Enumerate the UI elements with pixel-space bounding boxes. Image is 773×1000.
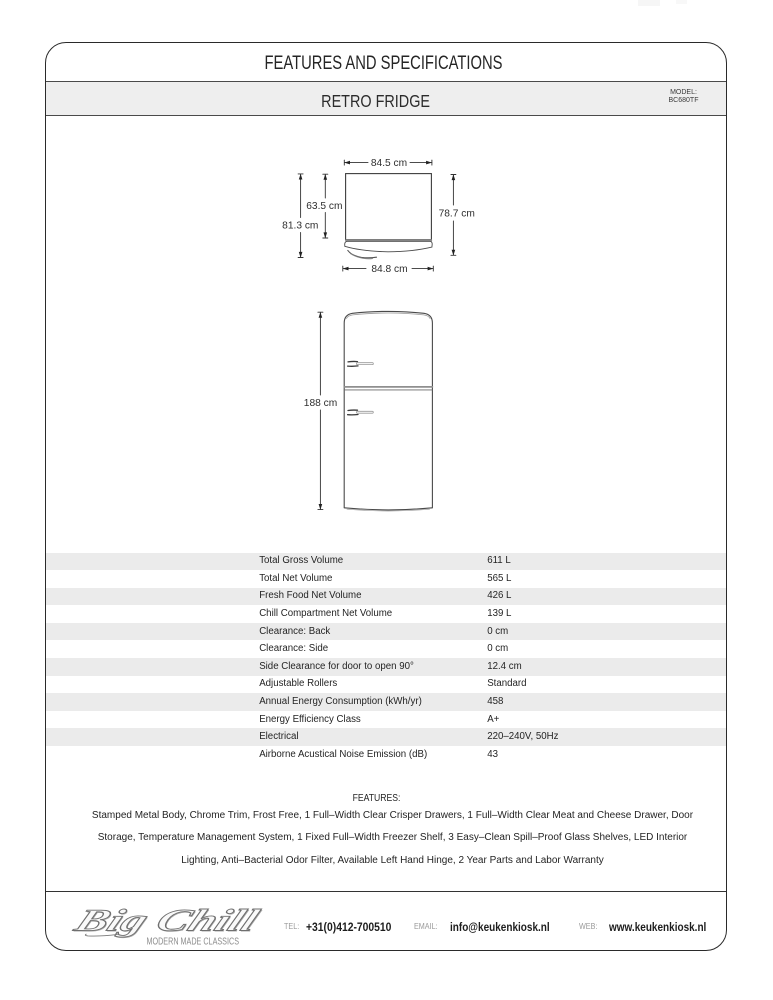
svg-text:78.7 cm: 78.7 cm [439, 208, 475, 219]
svg-text:63.5 cm: 63.5 cm [306, 201, 342, 212]
svg-text:188 cm: 188 cm [304, 398, 337, 409]
svg-text:Big Chill: Big Chill [69, 903, 265, 937]
svg-text:84.8 cm: 84.8 cm [371, 264, 407, 275]
svg-text:MODERN MADE CLASSICS: MODERN MADE CLASSICS [147, 936, 240, 947]
svg-text:81.3 cm: 81.3 cm [282, 221, 318, 232]
svg-text:84.5 cm: 84.5 cm [371, 158, 407, 169]
